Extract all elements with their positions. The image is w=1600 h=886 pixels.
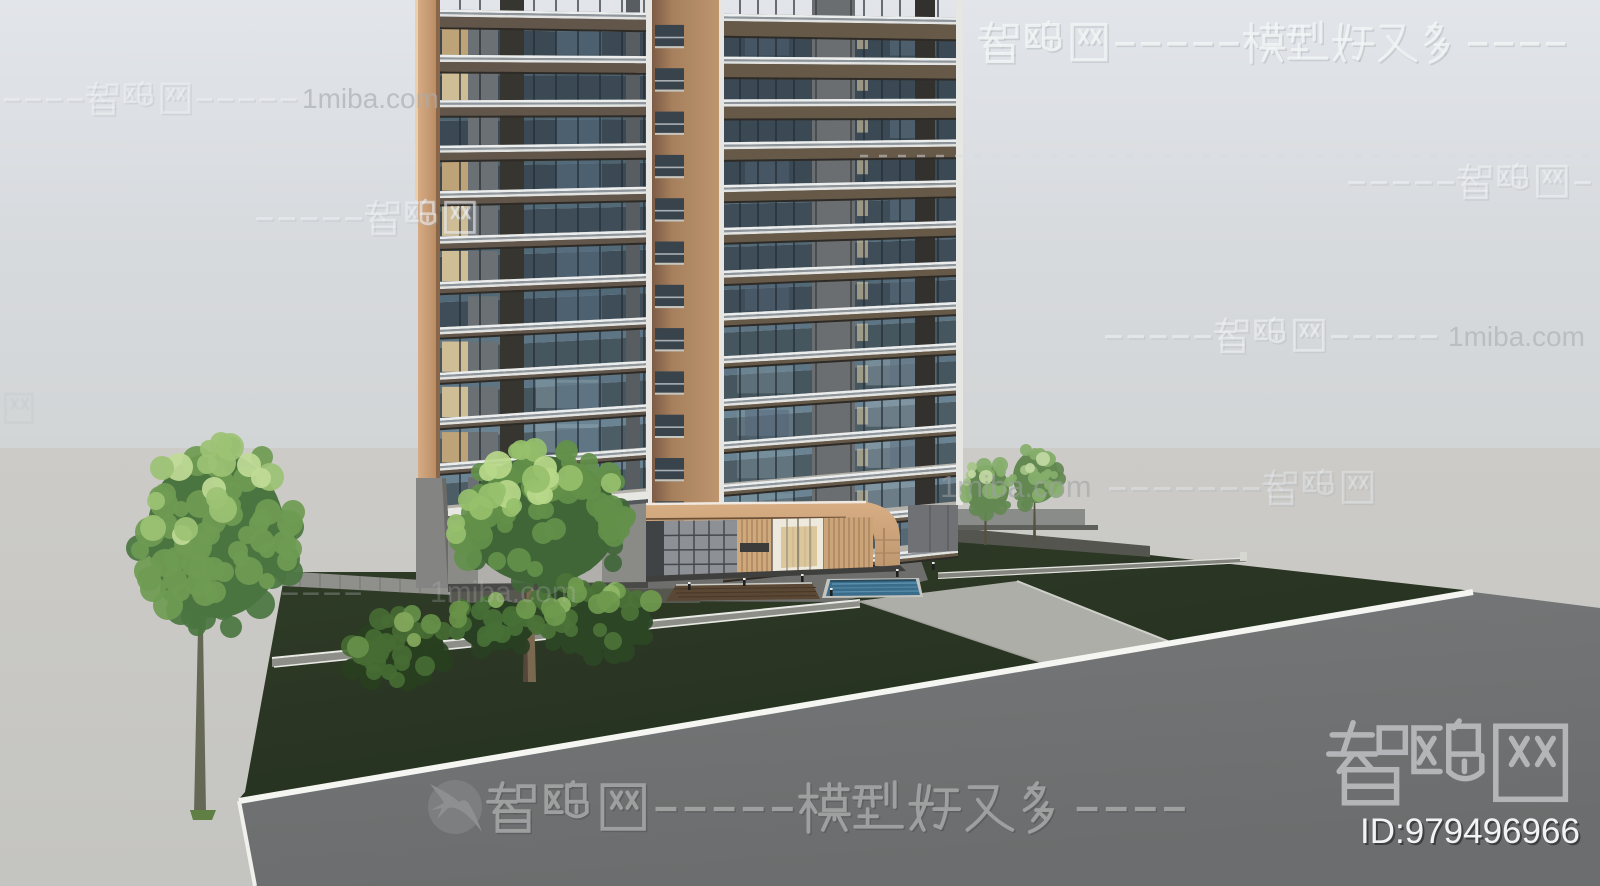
svg-text:1miba.com: 1miba.com xyxy=(302,83,439,114)
svg-text:1miba.com: 1miba.com xyxy=(1448,321,1585,352)
svg-text:1miba.com: 1miba.com xyxy=(430,576,577,609)
svg-text:1miba.com: 1miba.com xyxy=(940,469,1092,504)
svg-text:ID:979496966: ID:979496966 xyxy=(1360,812,1580,851)
